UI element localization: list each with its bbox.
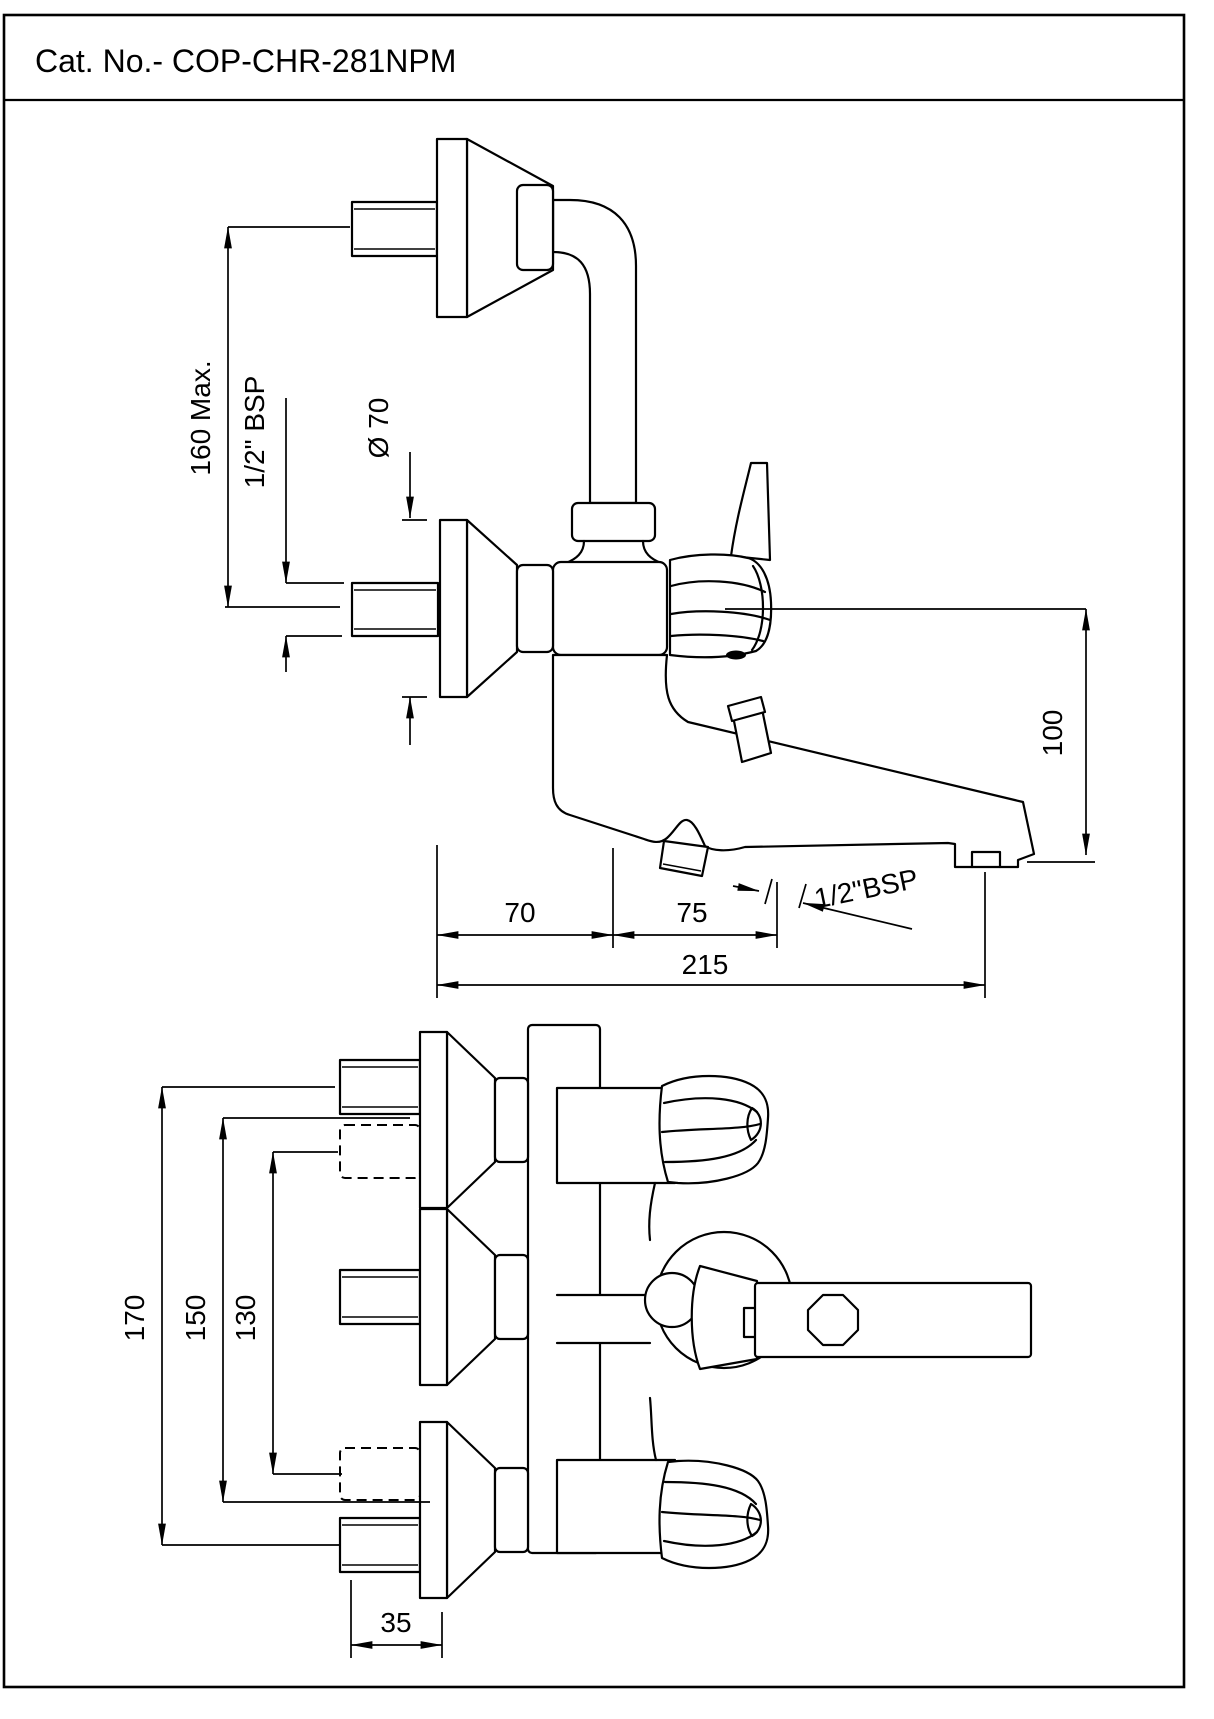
wall-nipple: [352, 202, 437, 256]
knob-front-top: [660, 1076, 769, 1183]
flange-cone: [467, 520, 517, 697]
bath-spout: [553, 655, 1034, 867]
front-view: 170 150 130 35: [119, 1025, 1031, 1658]
spout-collar: [692, 1266, 757, 1369]
page-title: Cat. No.- COP-CHR-281NPM: [35, 43, 456, 79]
front-bottom-inlet: [340, 1422, 528, 1598]
front-middle-inlet: [340, 1209, 528, 1385]
knob-index-dot: [726, 651, 746, 660]
dim-flange-diameter: Ø 70: [363, 398, 394, 459]
bend-pipe: [553, 200, 636, 503]
wall-nipple: [352, 583, 438, 636]
flange-plate: [437, 139, 467, 317]
dim-hidden-centers: 130: [230, 1295, 261, 1342]
drawing-canvas: Cat. No.- COP-CHR-281NPM: [0, 0, 1214, 1719]
flange-neck: [517, 185, 553, 270]
hidden-nipple-position: [340, 1125, 420, 1178]
dim-total-projection: 215: [682, 949, 729, 980]
dim-spout-drop: 100: [1037, 710, 1068, 757]
dim-inlet-thread: 1/2" BSP: [239, 376, 270, 489]
front-top-inlet: [340, 1032, 528, 1208]
technical-drawing-page: Cat. No.- COP-CHR-281NPM: [0, 0, 1214, 1719]
union-nut: [572, 503, 655, 541]
hidden-nipple-position: [340, 1448, 420, 1500]
spout-hex-nut: [808, 1295, 858, 1345]
flange-plate: [440, 520, 467, 697]
lever-handle: [731, 463, 770, 560]
dim-wall-to-diverter: 70: [504, 897, 535, 928]
dim-nipple-length: 35: [380, 1607, 411, 1638]
dim-diverter-to-outlet: 75: [676, 897, 707, 928]
valve-body: [553, 562, 667, 655]
upper-boss: [557, 1088, 675, 1183]
dim-alternate-centers: 150: [180, 1295, 211, 1342]
dim-outlet-thread: 1/2"BSP: [812, 863, 921, 914]
dim-height-max: 160 Max.: [185, 360, 216, 475]
lower-inlet-flange: [352, 520, 553, 697]
top-inlet-flange: [352, 139, 553, 317]
side-view: 160 Max. 1/2" BSP Ø 70 100: [185, 139, 1095, 998]
knob-side: [670, 554, 771, 659]
diverter-stem: [557, 1295, 652, 1343]
lower-boss: [557, 1460, 675, 1553]
dim-outer-centers: 170: [119, 1295, 150, 1342]
knob-front-bottom: [660, 1461, 769, 1568]
flange-neck: [517, 565, 553, 652]
spout-front: [755, 1283, 1031, 1357]
